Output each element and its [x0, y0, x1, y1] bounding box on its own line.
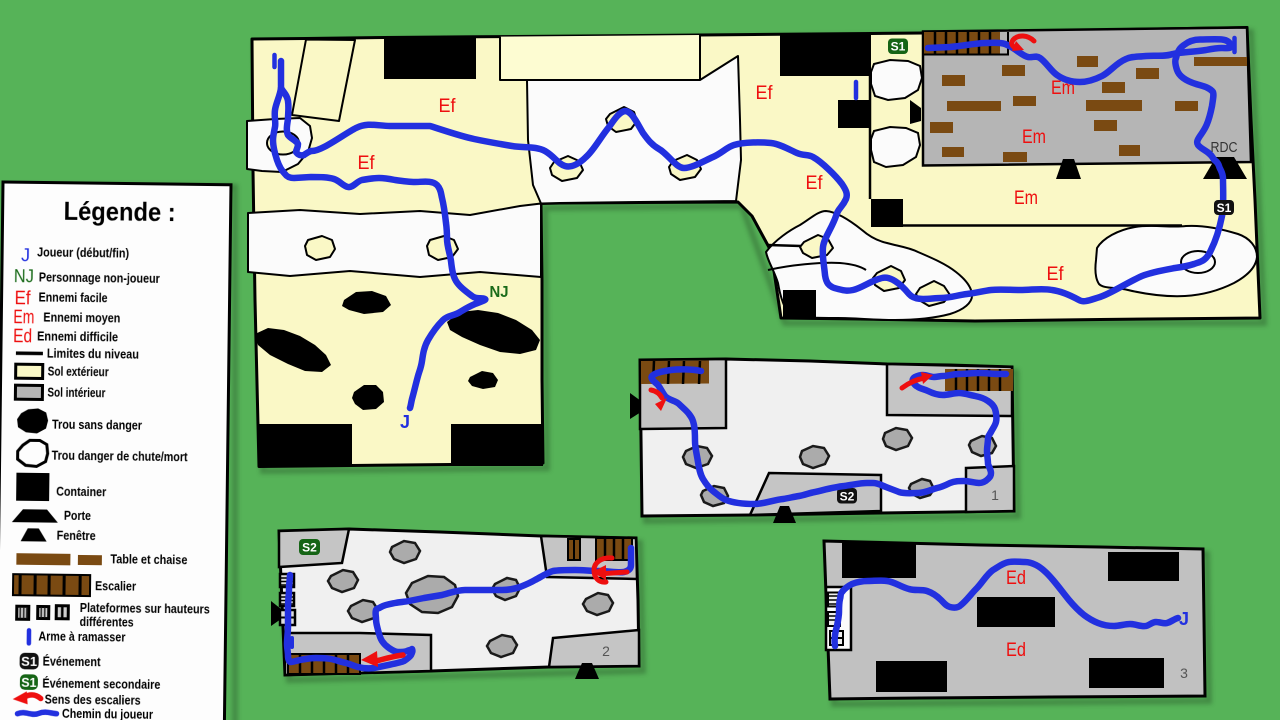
svg-text:Trou sans danger: Trou sans danger — [52, 417, 142, 433]
svg-text:Sol extérieur: Sol extérieur — [48, 364, 109, 380]
svg-text:Chemin du joueur: Chemin du joueur — [62, 706, 153, 720]
svg-text:J: J — [400, 412, 410, 432]
svg-text:Ed: Ed — [1006, 640, 1026, 661]
svg-text:S1: S1 — [21, 654, 37, 669]
svg-text:Ef: Ef — [358, 153, 376, 174]
svg-text:Ennemi facile: Ennemi facile — [39, 289, 108, 305]
svg-text:Ed: Ed — [13, 326, 32, 347]
svg-text:NJ: NJ — [14, 266, 34, 286]
svg-text:Ef: Ef — [806, 173, 824, 194]
svg-text:Limites du niveau: Limites du niveau — [47, 346, 139, 362]
svg-text:1: 1 — [991, 487, 999, 503]
svg-text:J: J — [21, 245, 30, 265]
svg-text:Ef: Ef — [756, 83, 774, 104]
svg-text:Ef: Ef — [14, 288, 31, 309]
svg-text:S2: S2 — [302, 541, 317, 555]
svg-text:Trou danger de chute/mort: Trou danger de chute/mort — [52, 448, 189, 465]
svg-text:Em: Em — [1014, 188, 1038, 209]
svg-text:S2: S2 — [840, 490, 855, 504]
svg-text:3: 3 — [1180, 665, 1188, 681]
svg-text:Arme à ramasser: Arme à ramasser — [38, 628, 125, 644]
svg-text:Joueur (début/fin): Joueur (début/fin) — [37, 244, 129, 260]
svg-text:Ef: Ef — [1047, 264, 1065, 285]
svg-text:Container: Container — [56, 484, 106, 500]
svg-text:J: J — [1179, 609, 1189, 629]
svg-text:NJ: NJ — [490, 284, 509, 301]
svg-text:Ed: Ed — [1006, 568, 1026, 589]
svg-text:Sol intérieur: Sol intérieur — [47, 385, 105, 401]
svg-text:2: 2 — [602, 643, 610, 659]
svg-text:différentes: différentes — [80, 614, 134, 630]
svg-text:Porte: Porte — [64, 508, 91, 523]
svg-text:Table et chaise: Table et chaise — [110, 551, 187, 567]
svg-text:Personnage non-joueur: Personnage non-joueur — [39, 269, 160, 285]
svg-text:RDC: RDC — [1211, 139, 1238, 156]
svg-text:S1: S1 — [1217, 201, 1232, 215]
svg-text:Fenêtre: Fenêtre — [57, 528, 96, 543]
svg-text:Em: Em — [1022, 127, 1046, 148]
svg-text:Escalier: Escalier — [95, 578, 136, 593]
svg-text:Légende :: Légende : — [63, 196, 175, 227]
svg-text:Ennemi moyen: Ennemi moyen — [43, 310, 120, 326]
svg-text:Ennemi difficile: Ennemi difficile — [37, 328, 118, 344]
svg-text:S1: S1 — [891, 40, 906, 54]
svg-text:Événement secondaire: Événement secondaire — [42, 676, 160, 692]
svg-text:Événement: Événement — [43, 654, 102, 670]
svg-text:S1: S1 — [21, 676, 37, 690]
svg-text:Ef: Ef — [439, 96, 457, 117]
